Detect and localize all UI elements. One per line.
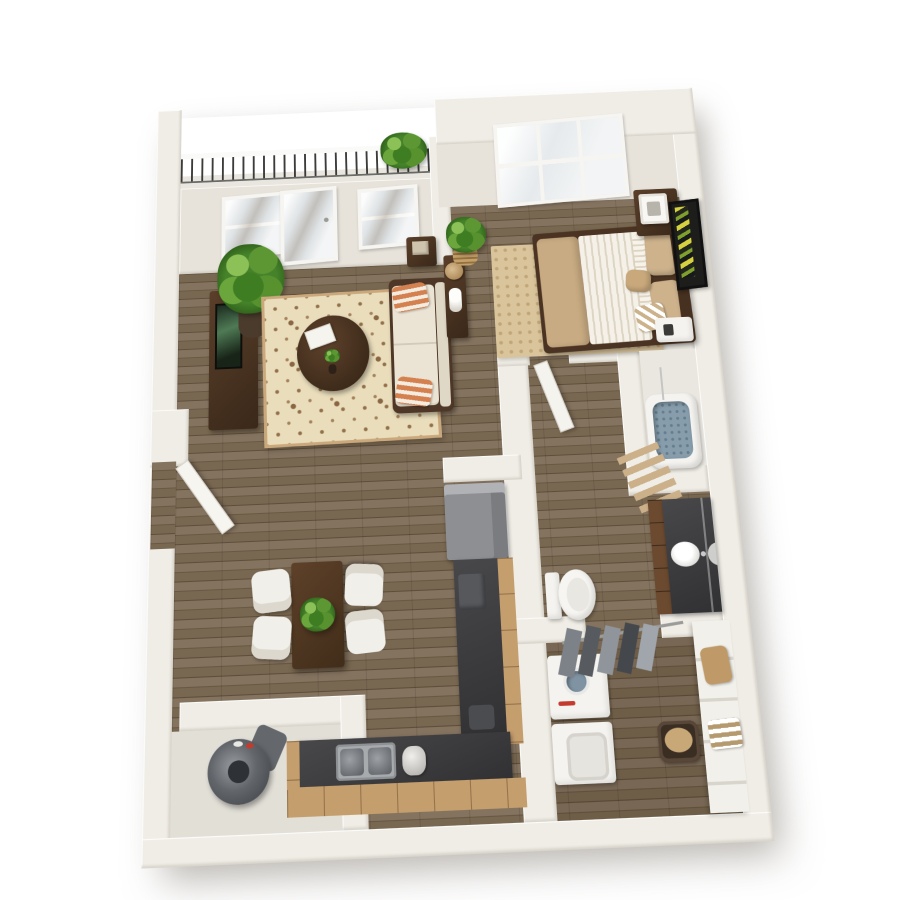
garment-5 (636, 623, 659, 671)
bedroom-window (493, 113, 630, 208)
cube-lamp-inner (646, 201, 661, 216)
sink-bowl-left (340, 748, 364, 776)
dryer (551, 722, 616, 786)
nightstand-decor (663, 324, 674, 336)
laundry-basket (657, 720, 701, 762)
coffee-table-vase (329, 364, 337, 374)
water-heater-valve-white (233, 741, 243, 747)
countertop-appliance (458, 573, 487, 610)
wall-entry-niche (150, 409, 189, 468)
nightstand-bottom (655, 317, 694, 343)
laundry-basket-cloth (664, 727, 694, 753)
kettle (402, 745, 427, 775)
floor-plan-stage (0, 0, 900, 900)
toilet (544, 566, 598, 623)
bed-pillow-accent (625, 269, 651, 293)
console-vases-white (449, 288, 463, 313)
dining-chair-4 (344, 608, 386, 655)
vanity-sink (670, 541, 701, 567)
entry-threshold (150, 461, 176, 549)
washer-button-red (558, 701, 575, 706)
dining-chair-1 (251, 568, 293, 615)
dining-chair-3 (344, 563, 384, 606)
apartment-floor-plan (141, 88, 774, 869)
wall-kitchen-top (443, 454, 523, 482)
shelf-striped-towels (707, 717, 744, 750)
side-table-box (412, 241, 429, 255)
wall-art-canvas (675, 206, 696, 278)
kitchen-cabinet-endcap (287, 741, 300, 790)
sink-bowl-right (368, 747, 392, 775)
french-door (280, 186, 338, 266)
kitchen-sink (336, 742, 397, 781)
sofa-pillow-bottom (394, 376, 433, 407)
cube-lamp (638, 193, 669, 224)
water-heater-valve-red (246, 743, 253, 749)
dining-chair-2 (251, 616, 293, 661)
dryer-door (566, 732, 610, 781)
water-heater-cap (228, 760, 249, 784)
refrigerator (444, 482, 509, 560)
hanging-clothes (560, 620, 691, 688)
toaster (468, 704, 495, 730)
